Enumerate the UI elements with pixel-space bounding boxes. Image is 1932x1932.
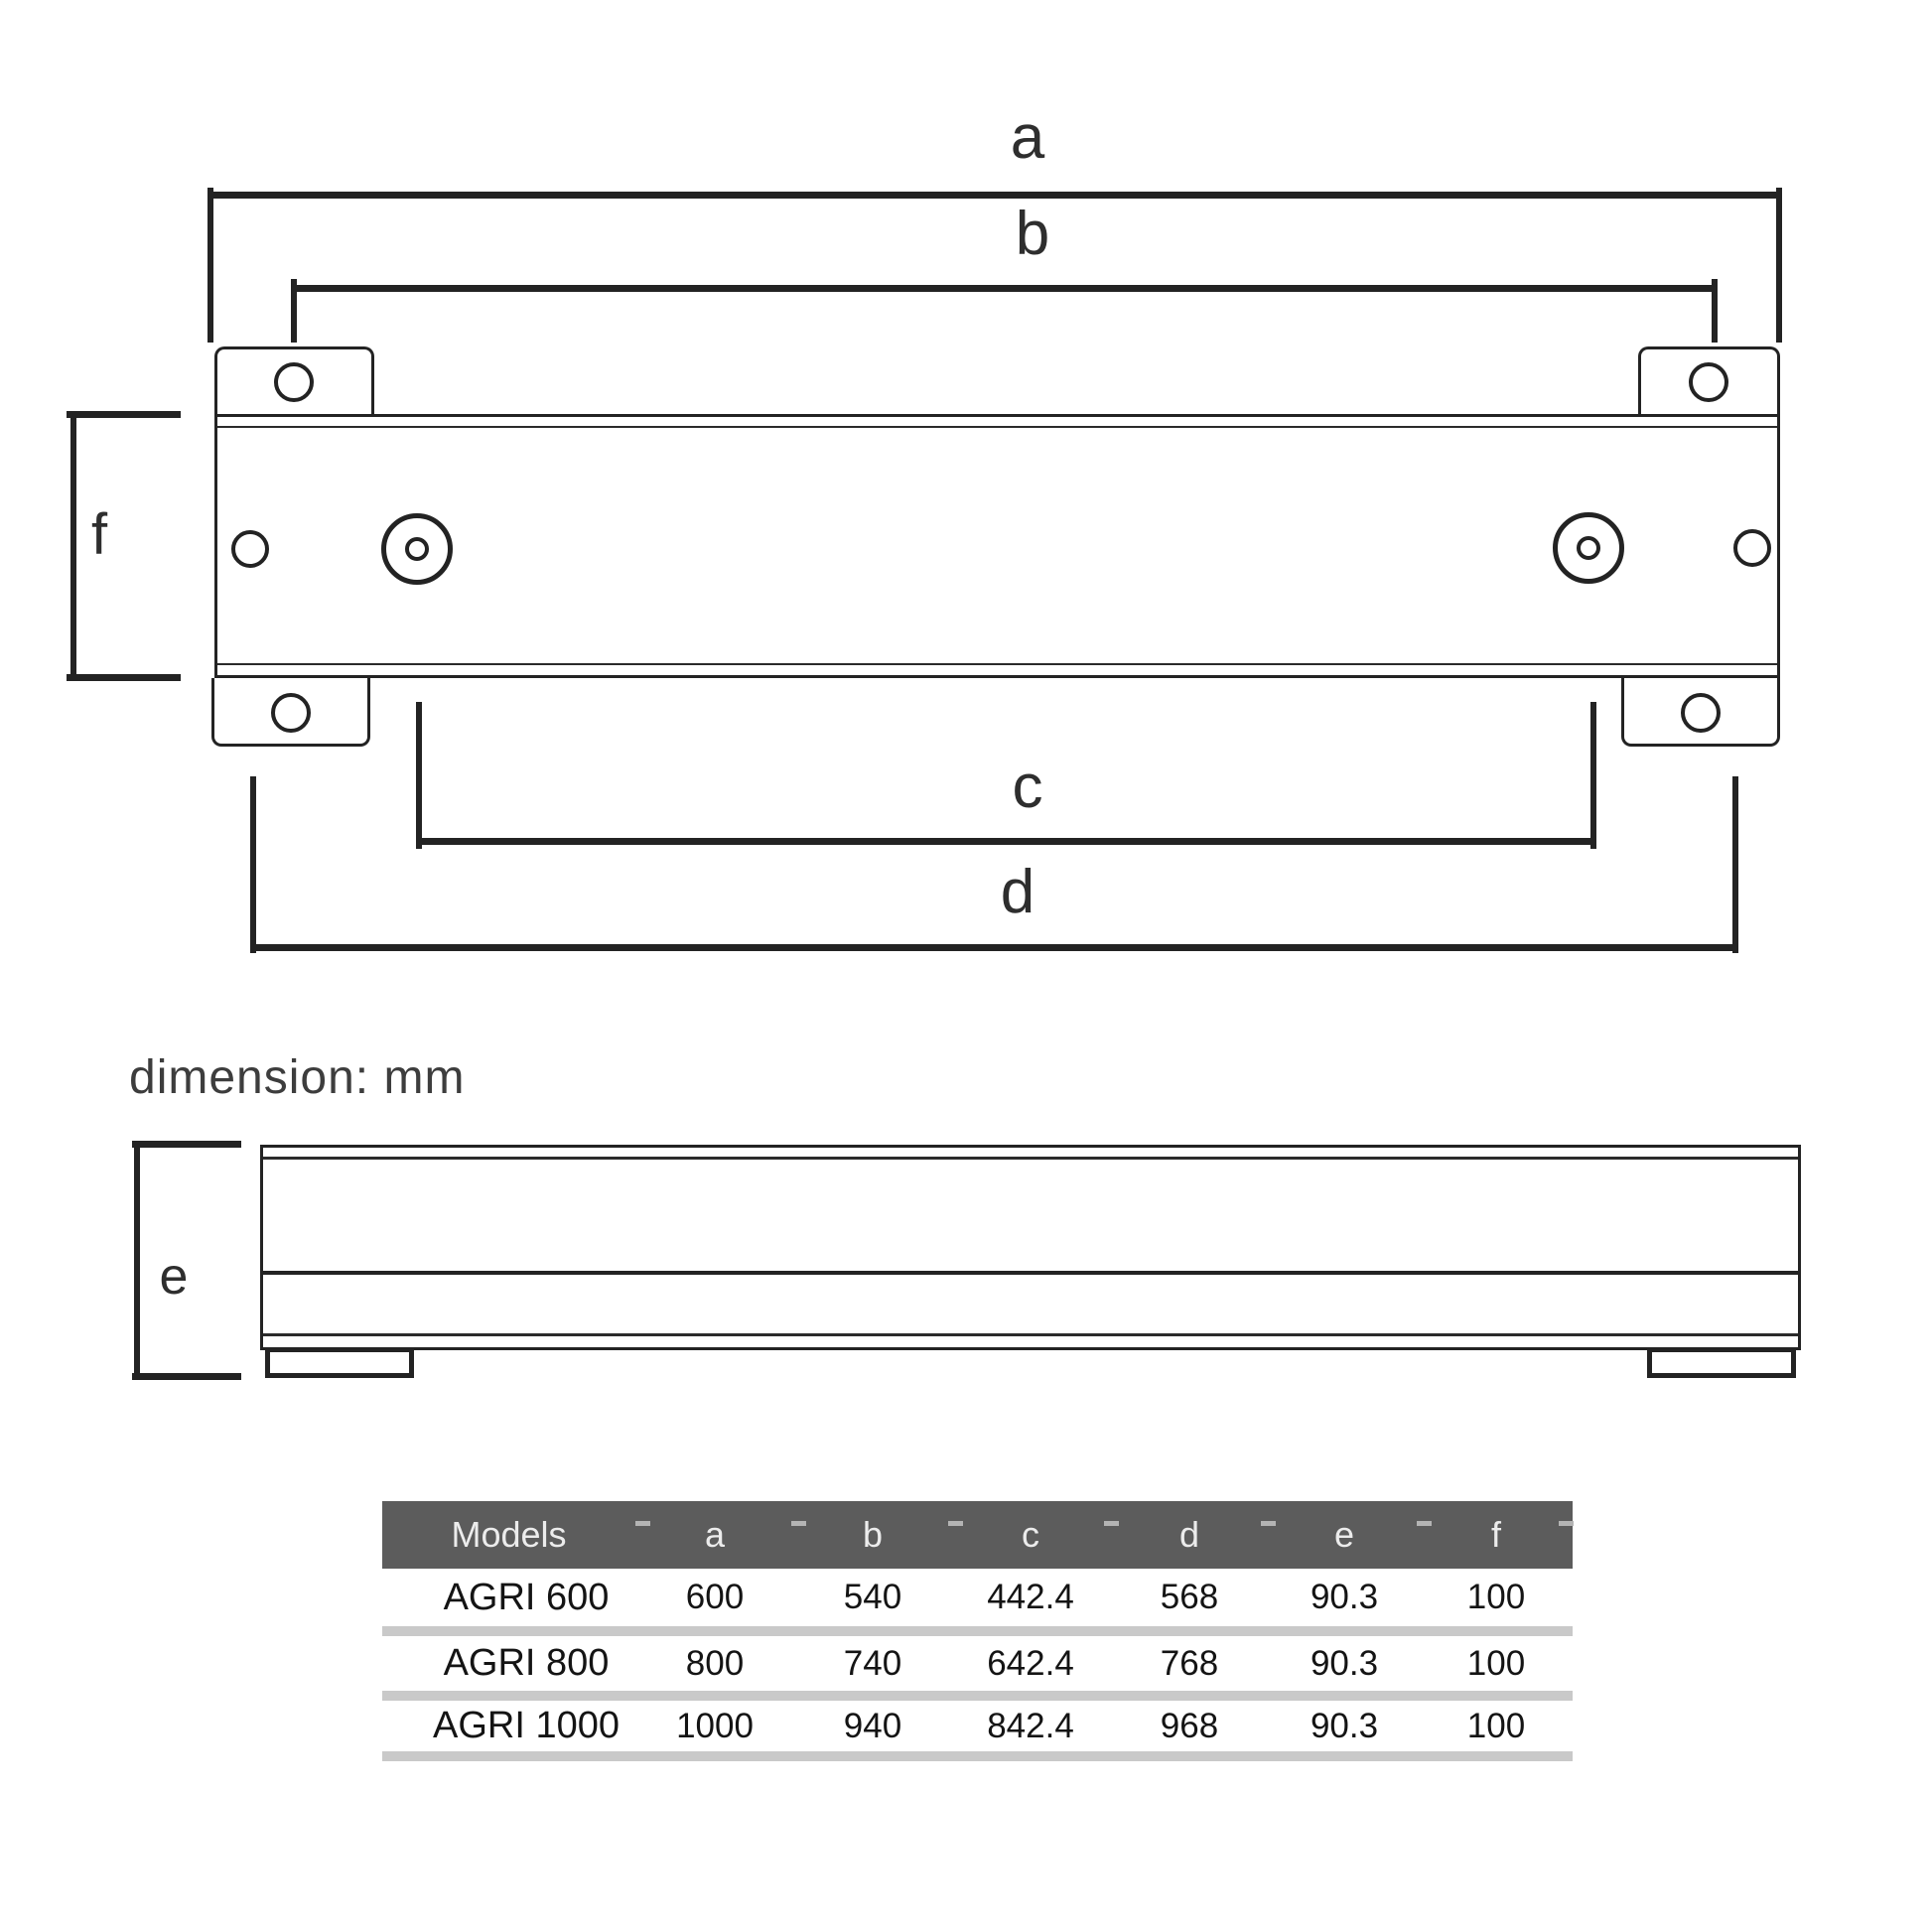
- mounting-hole-bottom-right: [1681, 693, 1721, 733]
- dim-b-extension-left: [291, 279, 297, 343]
- dim-a-extension-right: [1776, 188, 1782, 343]
- model-name: AGRI 1000: [382, 1705, 635, 1747]
- header-divider-dash: [791, 1521, 806, 1526]
- dim-c-extension-right: [1590, 702, 1596, 849]
- dim-e-tick-top: [132, 1141, 241, 1148]
- row-separator: [382, 1751, 1573, 1761]
- dim-a-label: a: [993, 107, 1062, 169]
- dim-d-label: d: [983, 862, 1052, 923]
- dim-f-label: f: [65, 504, 134, 566]
- header-divider-dash: [1417, 1521, 1432, 1526]
- column-header-d: d: [1110, 1514, 1269, 1556]
- row-separator: [382, 1626, 1573, 1636]
- side-foot-left: [265, 1347, 414, 1378]
- value-c: 842.4: [951, 1707, 1110, 1746]
- side-profile-middle-line: [263, 1271, 1798, 1275]
- value-e: 90.3: [1269, 1578, 1420, 1617]
- header-divider-dash: [1261, 1521, 1276, 1526]
- header-divider-dash: [1104, 1521, 1119, 1526]
- dim-e-label: e: [139, 1246, 208, 1308]
- technical-drawing-page: a b f: [0, 0, 1932, 1932]
- dimensions-table: Models a b c d e f AGRI 600 600 540 442.…: [382, 1501, 1573, 1761]
- dim-c-line: [422, 838, 1593, 845]
- value-d: 568: [1110, 1578, 1269, 1617]
- value-b: 540: [794, 1578, 951, 1617]
- dimension-unit-note: dimension: mm: [129, 1050, 465, 1105]
- side-hole-left: [231, 530, 269, 568]
- value-f: 100: [1420, 1707, 1573, 1746]
- dim-d-line: [256, 944, 1735, 951]
- value-c: 642.4: [951, 1644, 1110, 1684]
- value-d: 968: [1110, 1707, 1269, 1746]
- body-inner-line-top: [217, 426, 1777, 428]
- value-a: 600: [635, 1578, 794, 1617]
- dim-b-line: [294, 285, 1715, 292]
- dim-a-line: [210, 192, 1780, 199]
- value-b: 740: [794, 1644, 951, 1684]
- header-divider-dash: [948, 1521, 963, 1526]
- row-separator: [382, 1691, 1573, 1701]
- value-b: 940: [794, 1707, 951, 1746]
- header-divider-dash: [635, 1521, 650, 1526]
- table-row: AGRI 800 800 740 642.4 768 90.3 100: [382, 1636, 1573, 1691]
- side-hole-right: [1733, 529, 1771, 567]
- side-foot-right: [1647, 1347, 1796, 1378]
- value-f: 100: [1420, 1578, 1573, 1617]
- dim-a-extension-left: [207, 188, 213, 343]
- column-header-b: b: [794, 1514, 951, 1556]
- dim-b-extension-right: [1712, 279, 1718, 343]
- column-header-e: e: [1269, 1514, 1420, 1556]
- value-f: 100: [1420, 1644, 1573, 1684]
- dim-d-extension-right: [1732, 776, 1738, 953]
- dim-c-label: c: [993, 757, 1062, 818]
- value-e: 90.3: [1269, 1707, 1420, 1746]
- value-a: 800: [635, 1644, 794, 1684]
- column-header-c: c: [951, 1514, 1110, 1556]
- table-row: AGRI 1000 1000 940 842.4 968 90.3 100: [382, 1701, 1573, 1751]
- mounting-hole-bottom-left: [271, 693, 311, 733]
- body-inner-line-bottom: [217, 663, 1777, 665]
- side-profile-top-groove: [263, 1157, 1798, 1160]
- dim-c-extension-left: [416, 702, 422, 849]
- table-row: AGRI 600 600 540 442.4 568 90.3 100: [382, 1569, 1573, 1626]
- dim-b-label: b: [998, 204, 1067, 265]
- column-header-models: Models: [382, 1514, 635, 1556]
- dim-e-tick-bottom: [132, 1373, 241, 1380]
- model-name: AGRI 800: [382, 1642, 635, 1685]
- model-name: AGRI 600: [382, 1577, 635, 1619]
- side-profile-outline: [260, 1145, 1801, 1350]
- side-profile-lower-groove: [263, 1333, 1798, 1336]
- dim-f-tick-bottom: [67, 674, 181, 681]
- value-d: 768: [1110, 1644, 1269, 1684]
- value-e: 90.3: [1269, 1644, 1420, 1684]
- value-c: 442.4: [951, 1578, 1110, 1617]
- column-header-f: f: [1420, 1514, 1573, 1556]
- column-header-a: a: [635, 1514, 794, 1556]
- value-a: 1000: [635, 1707, 794, 1746]
- mounting-hole-top-right: [1689, 362, 1728, 402]
- dim-f-tick-top: [67, 411, 181, 418]
- screw-post-right-inner: [1577, 536, 1600, 560]
- table-header-row: Models a b c d e f: [382, 1501, 1573, 1569]
- dim-d-extension-left: [250, 776, 256, 953]
- header-divider-dash: [1559, 1521, 1574, 1526]
- screw-post-left-inner: [405, 537, 429, 561]
- mounting-hole-top-left: [274, 362, 314, 402]
